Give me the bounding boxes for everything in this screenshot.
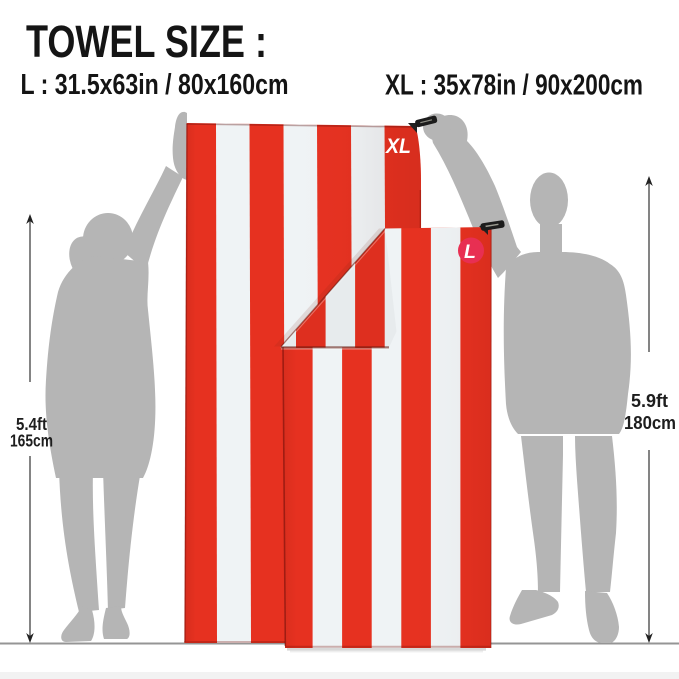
svg-text:XL: XL [385, 135, 411, 158]
svg-text:XL : 35x78in / 90x200cm: XL : 35x78in / 90x200cm [385, 70, 643, 102]
svg-text:L : 31.5x63in / 80x160cm: L : 31.5x63in / 80x160cm [21, 69, 289, 101]
svg-text:L: L [464, 241, 476, 263]
svg-text:165cm: 165cm [10, 431, 53, 451]
svg-text:180cm: 180cm [624, 413, 676, 433]
svg-text:5.9ft: 5.9ft [631, 391, 668, 411]
svg-text:TOWEL SIZE :: TOWEL SIZE : [26, 16, 267, 67]
